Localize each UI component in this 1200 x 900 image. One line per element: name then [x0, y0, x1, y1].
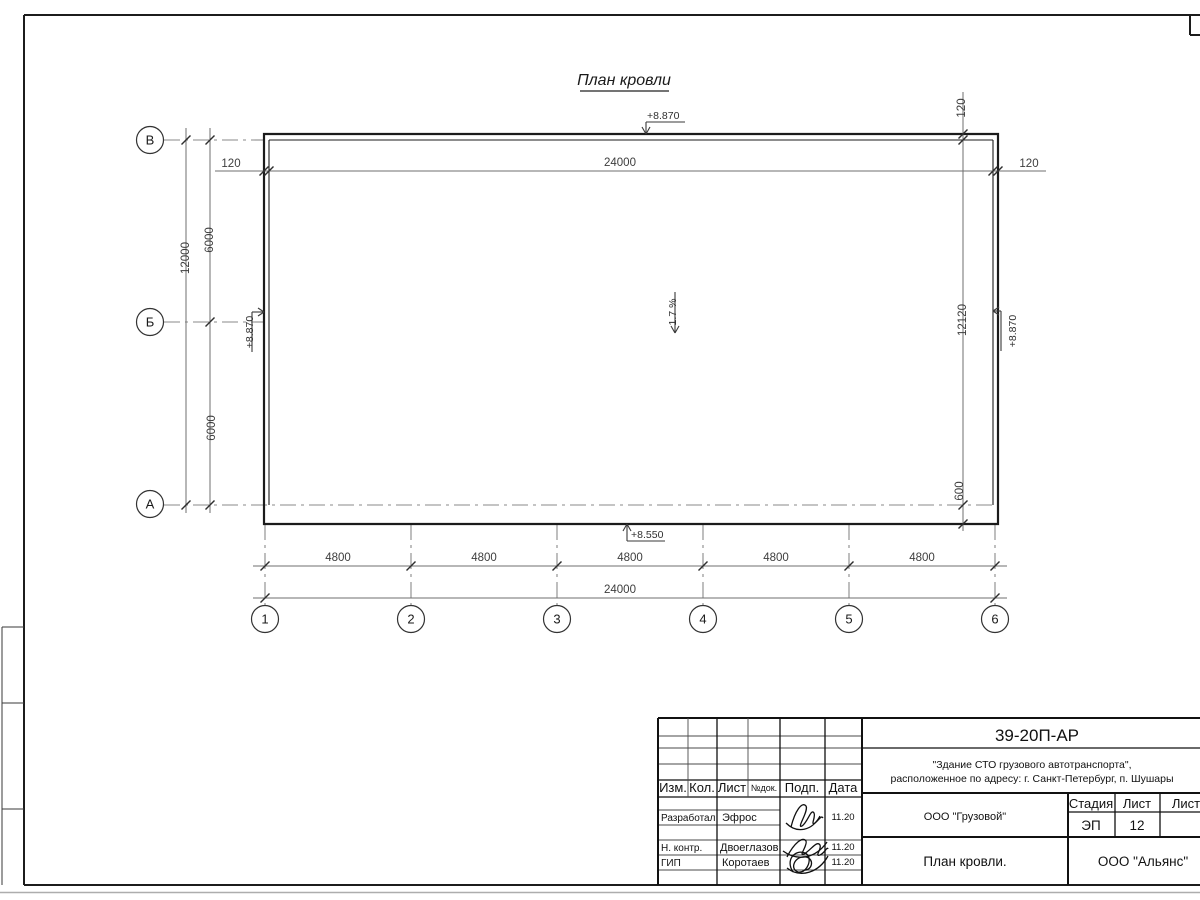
roof-outline [264, 134, 998, 524]
tb-col-izm: Изм. [659, 780, 687, 795]
dim-overhang: 600 [954, 481, 966, 500]
drawing-title: План кровли [577, 72, 671, 91]
tb-col-data: Дата [829, 780, 859, 795]
tb-col-podp: Подп. [785, 780, 820, 795]
dim-bay-1: 4800 [325, 552, 351, 564]
tb-date-gip: 11.20 [831, 857, 854, 868]
dim-parapet-top-right: 120 [956, 98, 968, 117]
dim-total-bottom: 24000 [604, 584, 636, 596]
dim-roof-depth: 12120 [957, 304, 969, 336]
axis-col-6: 6 [991, 612, 998, 627]
axis-col-1: 1 [261, 612, 268, 627]
dim-bay-4: 4800 [763, 552, 789, 564]
axis-col-4: 4 [699, 612, 706, 627]
dim-bay-left-1: 6000 [204, 227, 216, 253]
tb-project-line2: расположенное по адресу: г. Санкт-Петерб… [891, 773, 1174, 785]
tb-col-ndok: №док. [751, 783, 777, 793]
axis-col-2: 2 [407, 612, 414, 627]
tb-role-developer: Разработал [661, 812, 716, 824]
drawing-sheet: План кровли [0, 0, 1200, 900]
tb-name-gip: Коротаев [722, 857, 770, 869]
tb-name-ncontr: Двоеглазов [720, 842, 779, 854]
roof-plan-drawing: План кровли [0, 0, 1200, 900]
elevation-top: +8.870 [642, 110, 685, 134]
dim-bay-2: 4800 [471, 552, 497, 564]
axis-lines [164, 140, 995, 606]
axis-row-v: В [146, 133, 155, 148]
tb-date-ncontr: 11.20 [831, 842, 854, 853]
plan-title-text: План кровли [577, 72, 671, 89]
tb-name-developer: Эфрос [722, 812, 757, 824]
dimension-texts: 24000 120 120 120 12120 600 12000 6000 6… [180, 98, 1039, 596]
elevation-left: +8.870 [244, 308, 264, 352]
tb-role-ncontr: Н. контр. [661, 843, 702, 854]
title-block: Изм. Кол. Лист №док. Подп. Дата Разработ… [658, 718, 1200, 885]
dim-bay-3: 4800 [617, 552, 643, 564]
dim-bay-5: 4800 [909, 552, 935, 564]
tb-col-kol: Кол. [689, 780, 715, 795]
slope-marker: 1.7 % [667, 292, 679, 333]
tb-sheets-label: Листов [1172, 796, 1200, 811]
tb-client: ООО "Грузовой" [924, 811, 1006, 823]
dim-total-left: 12000 [180, 242, 192, 274]
dimension-ticks [182, 130, 1003, 603]
tb-sheet-title: План кровли. [923, 854, 1006, 869]
elevation-eave: +8.550 [623, 524, 665, 541]
tb-sheet-value: 12 [1129, 818, 1144, 833]
tb-company: ООО "Альянс" [1098, 854, 1188, 869]
dim-parapet-right: 120 [1019, 158, 1038, 170]
axis-col-3: 3 [553, 612, 560, 627]
tb-role-gip: ГИП [661, 858, 681, 869]
dim-total-top: 24000 [604, 157, 636, 169]
slope-label: 1.7 % [667, 299, 679, 326]
elevation-top-value: +8.870 [647, 110, 680, 122]
tb-col-list: Лист [718, 780, 746, 795]
tb-stage-label: Стадия [1069, 796, 1113, 811]
signature-developer [786, 805, 823, 830]
tb-project-line1: "Здание СТО грузового автотранспорта", [932, 759, 1131, 771]
axis-col-5: 5 [845, 612, 852, 627]
elevation-eave-value: +8.550 [631, 529, 664, 541]
dim-parapet-left: 120 [221, 158, 240, 170]
tb-doc-number: 39-20П-АР [995, 726, 1079, 745]
elevation-marks: +8.870 +8.870 +8.870 +8.550 [244, 110, 1019, 541]
axis-row-b: Б [146, 315, 155, 330]
axis-bubbles: В Б А 1 2 3 4 5 6 [137, 127, 1009, 633]
elevation-left-value: +8.870 [244, 316, 256, 349]
tb-stage-value: ЭП [1081, 818, 1100, 833]
tb-sheet-label: Лист [1123, 796, 1151, 811]
signature-ncontr [783, 839, 828, 857]
axis-row-a: А [146, 497, 155, 512]
tb-date-developer: 11.20 [831, 812, 854, 823]
dim-bay-left-2: 6000 [206, 415, 218, 441]
elevation-right-value: +8.870 [1007, 315, 1019, 348]
